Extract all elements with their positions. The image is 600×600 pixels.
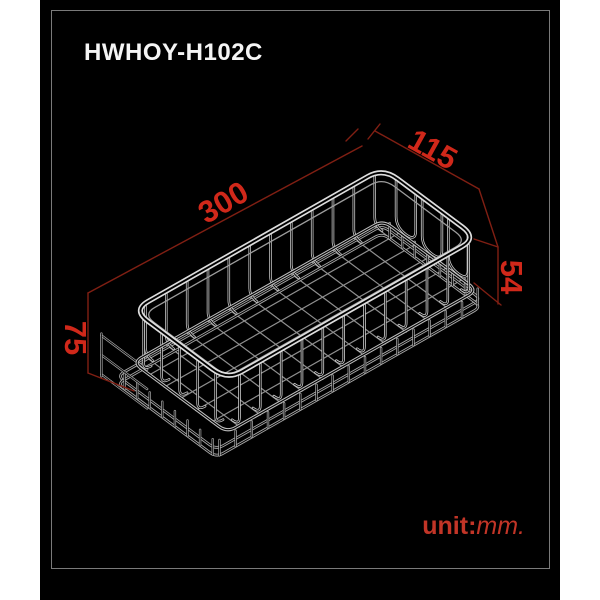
dimension-height-label: 75 [58, 321, 93, 355]
basket-dimension-diagram: 300 115 75 54 [0, 0, 600, 600]
unit-value: mm. [476, 512, 525, 540]
unit-prefix: unit: [422, 512, 476, 540]
left-margin [0, 0, 40, 600]
unit-label: unit:mm. [422, 512, 525, 541]
dimension-width-label: 115 [402, 122, 463, 177]
dimension-depth-label: 54 [494, 260, 529, 295]
product-code: HWHOY-H102C [84, 39, 263, 67]
basket-wireframe [101, 173, 477, 456]
right-margin [560, 0, 600, 600]
dimension-length-label: 300 [192, 174, 254, 230]
